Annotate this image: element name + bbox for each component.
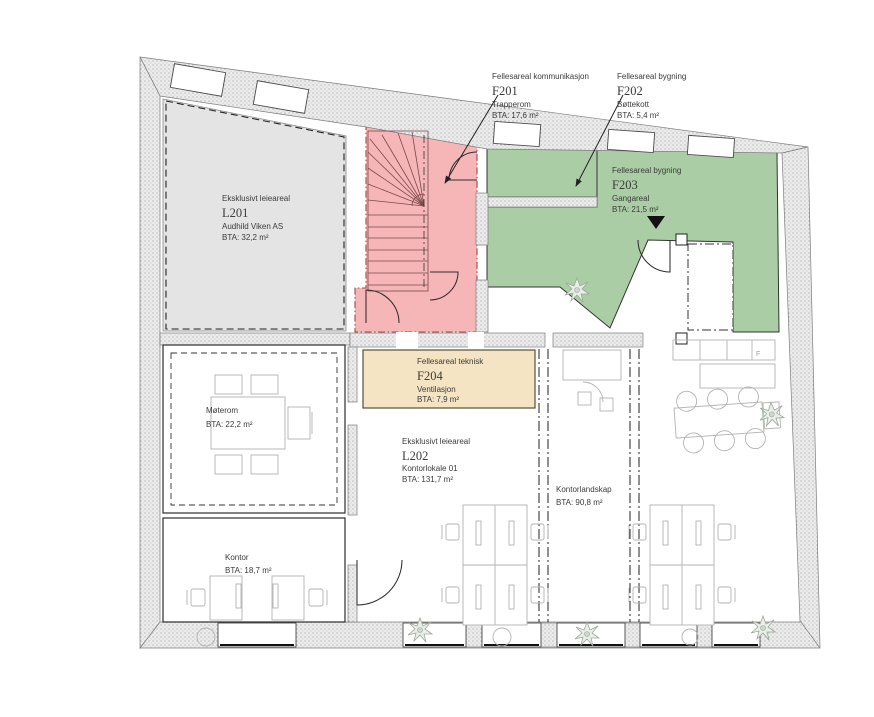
lunch-table-group [673,385,782,454]
f201-bta: BTA: 17,6 m² [492,111,539,120]
l201-bta: BTA: 32,2 m² [222,233,269,242]
f201-code: F201 [492,84,518,98]
l202-room-name: Kontorlokale 01 [402,464,458,473]
label-kontor: Kontor BTA: 18,7 m² [225,553,272,575]
moterom-name: Møterom [206,406,238,415]
misc-furniture [563,350,621,411]
kontor-desks-group [187,576,327,620]
l201-tenant-name: Audhild Viken AS [222,222,283,231]
kontor-bta: BTA: 18,7 m² [225,566,272,575]
window [607,129,654,152]
kontorlandskap-bta: BTA: 90,8 m² [556,498,603,507]
f204-code: F204 [417,369,443,383]
f203-category: Fellesareal bygning [612,166,681,175]
l201-code: L201 [222,206,248,220]
kitchen-counter: F [673,340,775,388]
f201-category: Fellesareal kommunikasjon [492,72,589,81]
kontor-name: Kontor [225,553,249,562]
label-moterom: Møterom BTA: 22,2 m² [206,406,253,429]
l201-category: Eksklusivt leieareal [222,194,290,203]
f202-category: Fellesareal bygning [617,72,686,81]
f204-category: Fellesareal teknisk [417,357,484,366]
f204-room-name: Ventilasjon [417,385,456,394]
f202-bta: BTA: 5,4 m² [617,111,659,120]
moterom-bta: BTA: 22,2 m² [206,420,253,429]
label-l202: Eksklusivt leieareal L202 Kontorlokale 0… [402,437,470,484]
wall-joint [676,234,687,245]
room-moterom [163,345,345,513]
f203-code: F203 [612,178,638,192]
room-wc [688,244,733,330]
f202-code: F202 [617,84,643,98]
outer-wall-right [782,147,820,647]
window [687,135,734,157]
label-kontorlandskap: Kontorlandskap BTA: 90,8 m² [556,485,612,507]
l202-bta: BTA: 131,7 m² [402,475,453,484]
outer-wall-left [140,57,160,648]
f202-room-name: Bøttekott [617,100,650,109]
area-l201-exclusive [163,99,346,331]
door-gap [468,332,484,348]
wall-joint [676,333,687,344]
door-gap [396,332,418,348]
desk-cluster-left [442,505,548,625]
window [493,121,540,146]
f203-bta: BTA: 21,5 m² [612,205,659,214]
floor-plan-canvas: F [0,0,874,717]
label-f202: Fellesareal bygning F202 Bøttekott BTA: … [617,72,686,120]
fridge-label: F [756,351,760,358]
kontorlandskap-name: Kontorlandskap [556,485,612,494]
area-f202-closet [487,148,597,197]
l202-category: Eksklusivt leieareal [402,437,470,446]
f203-room-name: Gangareal [612,194,650,203]
l202-code: L202 [402,449,428,463]
desk-cluster-right [629,505,735,625]
f204-bta: BTA: 7,9 m² [417,395,459,404]
f201-room-name: Trapperom [492,100,531,109]
door-kontor [357,560,402,605]
